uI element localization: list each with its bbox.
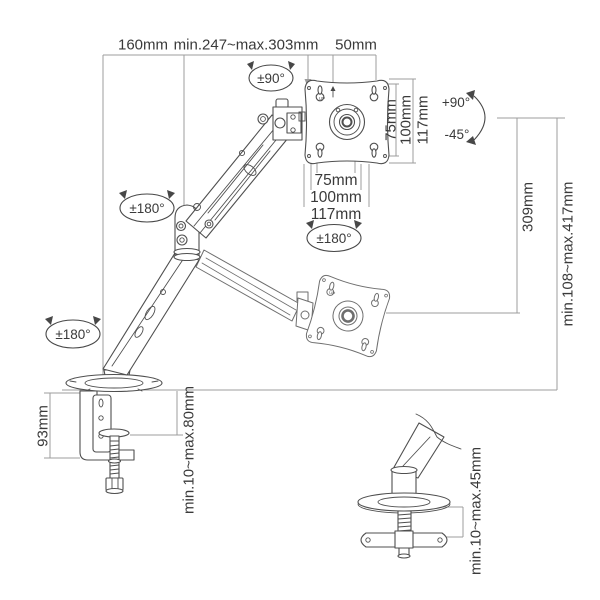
dim-head-width-label: 50mm — [335, 37, 377, 54]
vesa-plate-front: UP — [299, 80, 389, 163]
vesa-vertical-100-label: 100mm — [397, 95, 414, 145]
diagram-stage: UP — [0, 0, 600, 600]
rotation-tilt-down-label: -45° — [445, 127, 470, 142]
vesa-vertical-117-label: 117mm — [414, 96, 431, 145]
rotation-head-swivel-label: ±90° — [257, 71, 285, 86]
vesa-horizontal-117-label: 117mm — [311, 206, 362, 223]
vesa-plate-lowered: UP — [305, 274, 391, 358]
vesa-horizontal-75-label: 75mm — [314, 172, 357, 189]
rotation-base-label: ±180° — [55, 327, 90, 342]
dim-height-range-label: min.108~max.417mm — [559, 182, 576, 327]
vesa-horizontal-100-label: 100mm — [310, 189, 362, 206]
dim-grommet-capacity-label: min.10~max.45mm — [467, 447, 484, 575]
vesa-up-marking: UP — [319, 96, 325, 101]
desk-clamp-base — [80, 391, 134, 494]
dim-travel-label: 309mm — [519, 182, 536, 232]
rotation-tilt-up-label: +90° — [442, 95, 470, 110]
dim-base-width-label: 160mm — [118, 37, 168, 54]
grommet-mount-figure — [358, 414, 461, 558]
lowered-arm-drawing — [196, 250, 313, 331]
monitor-arm-dimension-diagram: UP — [0, 0, 600, 600]
rotation-elbow-label: ±180° — [129, 201, 164, 216]
arm-base-disc — [66, 370, 162, 392]
dim-clamp-capacity-label: min.10~max.80mm — [180, 386, 197, 514]
rotation-vesa-label: ±180° — [316, 231, 351, 246]
dim-clamp-height-label: 93mm — [34, 405, 51, 447]
tilt-arc — [474, 96, 485, 140]
dim-extension-label: min.247~max.303mm — [174, 37, 319, 54]
